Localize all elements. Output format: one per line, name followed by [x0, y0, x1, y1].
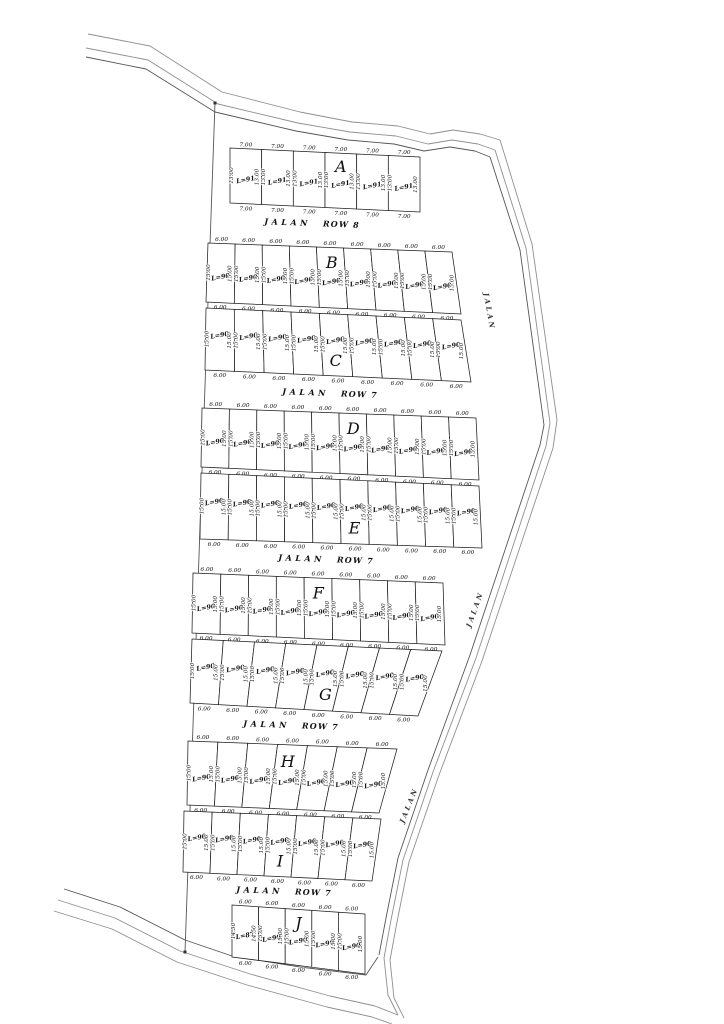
- lot-depth-dim: 15.00: [338, 933, 344, 950]
- lot-width-dim: 6.00: [228, 568, 241, 574]
- lot-depth-dim: 15.00: [422, 273, 428, 290]
- lot-depth-dim: 15.00: [381, 772, 387, 789]
- lot-width-dim: 6.00: [255, 710, 268, 716]
- lot-depth-dim: 15.00: [190, 662, 196, 679]
- lot-depth-dim: 15.00: [443, 439, 449, 456]
- lot-depth-dim: 15.00: [349, 337, 355, 354]
- lot-depth-dim: 15.00: [393, 673, 399, 690]
- lot-width-dim: 6.00: [351, 242, 364, 248]
- lot-depth-dim: 15.00: [430, 341, 436, 358]
- street-label-side: JALAN: [481, 290, 497, 331]
- lot-width-dim: 6.00: [296, 240, 309, 246]
- lot-depth-dim: 15.00: [234, 265, 240, 282]
- lot-width-dim: 6.00: [423, 576, 436, 582]
- lot-width-dim: 6.00: [361, 380, 374, 386]
- lot-depth-dim: 15.00: [276, 598, 282, 615]
- block-F: 6.006.00L=906.006.00L=906.006.00L=906.00…: [192, 567, 445, 653]
- plat-drawing: 7.007.00L=917.007.00L=917.007.00L=917.00…: [0, 0, 724, 1024]
- block-I: 6.00L=906.00L=906.00L=906.00L=90I6.00L=9…: [183, 811, 381, 889]
- lot-depth-dim: 15.00: [343, 337, 349, 354]
- lot-width-dim: 6.00: [376, 742, 389, 748]
- lot-depth-dim: 15.00: [183, 833, 189, 850]
- lot-depth-dim: 15.00: [305, 502, 311, 519]
- lot-depth-dim: 15.00: [238, 835, 244, 852]
- lot-depth-dim: 15.00: [187, 764, 193, 781]
- lot-width-dim: 6.00: [208, 542, 221, 548]
- lot-depth-dim: 15.00: [331, 601, 337, 618]
- lot-depth-dim: 15.00: [388, 437, 394, 454]
- north-road-outer: [88, 34, 500, 140]
- lot-depth-dim: 15.00: [321, 839, 327, 856]
- lot-depth-dim: 15.00: [422, 438, 428, 455]
- lot-width-dim: 7.00: [334, 147, 347, 153]
- lot-depth-dim: 15.00: [266, 768, 272, 785]
- lot-width-dim: 6.00: [352, 883, 365, 889]
- lot-depth-dim: 15.00: [201, 429, 207, 446]
- lot-width-dim: 6.00: [378, 243, 391, 249]
- lot-depth-dim: 15.00: [249, 500, 255, 517]
- lot-depth-dim: 13.00: [254, 168, 260, 185]
- lot-depth-dim: 15.00: [381, 603, 387, 620]
- lot-depth-dim: 15.00: [339, 435, 345, 452]
- lot-depth-dim: 15.00: [449, 439, 455, 456]
- lot-depth-dim: 15.00: [280, 667, 286, 684]
- lot-width-dim: 6.00: [271, 879, 284, 885]
- north-road-mid: [86, 48, 495, 150]
- lot-width-dim: 7.00: [398, 150, 411, 156]
- lot-depth-dim: 15.00: [311, 269, 317, 286]
- lot-depth-dim: 15.00: [372, 338, 378, 355]
- lot-width-dim: 6.00: [226, 736, 239, 742]
- lot-depth-dim: 15.00: [320, 336, 326, 353]
- lot-width-dim: 6.00: [291, 405, 304, 411]
- lot-depth-dim: 15.00: [332, 435, 338, 452]
- lot-width-dim: 6.00: [243, 375, 256, 381]
- lot-depth-dim: 15.00: [220, 664, 226, 681]
- lot-width-dim: 6.00: [405, 548, 418, 554]
- street-label: JALANROW 7: [234, 884, 332, 898]
- lot-depth-dim: 15.00: [262, 266, 268, 283]
- lot-depth-dim: 13.00: [388, 174, 394, 191]
- lot-width-dim: 7.00: [271, 144, 284, 150]
- lot-depth-dim: 15.00: [387, 603, 393, 620]
- lot-depth-dim: 15.00: [244, 767, 250, 784]
- lot-depth-dim: 15.00: [209, 766, 215, 783]
- lot-depth-dim: 15.00: [330, 770, 336, 787]
- lot-depth-dim: 15.00: [210, 834, 216, 851]
- lot-depth-dim: 15.00: [250, 431, 256, 448]
- lot-width-dim: 6.00: [217, 876, 230, 882]
- lot-width-dim: 6.00: [345, 907, 358, 913]
- lot-width-dim: 6.00: [312, 572, 325, 578]
- lot-depth-dim: 15.00: [415, 604, 421, 621]
- lot-depth-dim: 15.00: [437, 605, 443, 622]
- lot-width-dim: 6.00: [213, 373, 226, 379]
- lot-depth-dim: 15.00: [369, 672, 375, 689]
- lot-depth-dim: 15.00: [358, 935, 364, 952]
- lot-depth-dim: 15.00: [340, 503, 346, 520]
- lot-width-dim: 6.00: [349, 546, 362, 552]
- block-letter: I: [276, 852, 284, 871]
- lot-depth-dim: 14.50: [251, 925, 257, 942]
- block-letter: B: [325, 253, 338, 272]
- lot-depth-dim: 15.00: [284, 432, 290, 449]
- lot-width-dim: 6.00: [367, 574, 380, 580]
- lot-width-dim: 6.00: [292, 968, 305, 974]
- lot-depth-dim: 15.00: [248, 597, 254, 614]
- block-C: 6.00L=906.00L=906.00L=906.00L=906.00L=90…: [205, 308, 471, 390]
- north-road-inner: [86, 57, 490, 157]
- lot-width-dim: 6.00: [215, 237, 228, 243]
- lot-width-dim: 6.00: [324, 241, 337, 247]
- lot-depth-dim: 15.00: [333, 503, 339, 520]
- lot-depth-dim: 15.00: [284, 501, 290, 518]
- lot-width-dim: 6.00: [340, 714, 353, 720]
- lot-width-dim: 6.00: [244, 878, 257, 884]
- lot-depth-dim: 15.00: [284, 928, 290, 945]
- block-letter: A: [333, 157, 347, 176]
- lot-depth-dim: 15.00: [227, 332, 233, 349]
- block-J: 6.006.00L=876.006.00L=906.006.00L=90J6.0…: [231, 899, 365, 980]
- lot-width-dim: 6.00: [269, 239, 282, 245]
- lot-depth-dim: 15.00: [399, 673, 405, 690]
- lot-depth-dim: 15.00: [285, 334, 291, 351]
- lot-depth-dim: 15.00: [231, 835, 237, 852]
- lot-depth-dim: 15.00: [331, 933, 337, 950]
- lot-width-dim: 7.00: [239, 206, 252, 212]
- lot-depth-dim: 15.00: [389, 505, 395, 522]
- lot-width-dim: 6.00: [226, 708, 239, 714]
- lot-depth-dim: 13.00: [293, 170, 299, 187]
- lot-depth-dim: 13.00: [413, 176, 419, 193]
- lot-width-dim: 6.00: [292, 903, 305, 909]
- lot-width-dim: 6.00: [319, 406, 332, 412]
- lot-depth-dim: 15.00: [278, 928, 284, 945]
- lot-depth-dim: 15.00: [340, 670, 346, 687]
- lot-depth-dim: 15.00: [449, 274, 455, 291]
- lot-depth-dim: 15.00: [366, 271, 372, 288]
- lot-depth-dim: 15.00: [234, 332, 240, 349]
- lot-depth-dim: 15.00: [369, 841, 375, 858]
- lot-depth-dim: 15.00: [324, 770, 330, 787]
- lot-width-dim: 6.00: [265, 965, 278, 971]
- lot-width-dim: 6.00: [450, 384, 463, 390]
- lot-depth-dim: 15.00: [396, 505, 402, 522]
- street-label: JALANROW 7: [276, 552, 374, 566]
- lot-width-dim: 6.00: [237, 403, 250, 409]
- lot-depth-dim: 13.00: [356, 173, 362, 190]
- lot-width-dim: 6.00: [190, 875, 203, 881]
- lot-depth-dim: 15.00: [238, 767, 244, 784]
- lot-depth-dim: 15.00: [311, 433, 317, 450]
- lot-depth-dim: 15.00: [259, 837, 265, 854]
- lot-depth-dim: 15.00: [470, 440, 476, 457]
- block-letter: C: [330, 351, 342, 370]
- lot-width-dim: 6.00: [319, 971, 332, 977]
- block-G: 6.00L=906.00L=906.00L=906.00L=906.00L=90…: [190, 639, 442, 724]
- lot-width-dim: 6.00: [374, 408, 387, 414]
- lot-depth-dim: 15.00: [256, 333, 262, 350]
- lot-depth-dim: 15.00: [366, 436, 372, 453]
- lot-depth-dim: 15.00: [333, 670, 339, 687]
- lot-depth-dim: 13.00: [229, 167, 235, 184]
- lot-depth-dim: 15.00: [352, 771, 358, 788]
- lot-depth-dim: 15.00: [424, 506, 430, 523]
- lot-width-dim: 6.00: [298, 880, 311, 886]
- lot-depth-dim: 15.00: [200, 497, 206, 514]
- lot-depth-dim: 15.00: [445, 507, 451, 524]
- lot-depth-dim: 15.00: [360, 436, 366, 453]
- lot-depth-dim: 15.00: [311, 930, 317, 947]
- lot-width-dim: 6.00: [320, 546, 333, 552]
- lot-depth-dim: 15.00: [258, 925, 264, 942]
- street-label: JALANROW 7: [241, 718, 339, 732]
- lot-depth-dim: 15.00: [345, 270, 351, 287]
- block-B: 6.006.00L=906.006.00L=906.006.00L=906.00…: [206, 237, 461, 322]
- lot-width-dim: 7.00: [398, 214, 411, 220]
- lot-depth-dim: 13.00: [349, 173, 355, 190]
- lot-depth-dim: 15.00: [301, 769, 307, 786]
- lot-width-dim: 6.00: [332, 379, 345, 385]
- lot-width-dim: 6.00: [264, 544, 277, 550]
- lot-width-dim: 6.00: [302, 377, 315, 383]
- lot-depth-dim: 15.00: [452, 507, 458, 524]
- lot-depth-dim: 15.00: [317, 269, 323, 286]
- lot-depth-dim: 15.00: [277, 501, 283, 518]
- lot-width-dim: 6.00: [196, 735, 209, 741]
- lot-width-dim: 6.00: [461, 550, 474, 556]
- lot-width-dim: 6.00: [200, 567, 213, 573]
- lot-depth-dim: 15.00: [206, 264, 212, 281]
- lot-depth-dim: 15.00: [263, 333, 269, 350]
- lot-width-dim: 6.00: [283, 711, 296, 717]
- block-A: 7.007.00L=917.007.00L=917.007.00L=917.00…: [229, 142, 420, 220]
- site-plan-svg: 7.007.00L=917.007.00L=917.007.00L=917.00…: [0, 0, 724, 1024]
- lot-depth-dim: 15.00: [283, 267, 289, 284]
- lot-depth-dim: 15.00: [314, 336, 320, 353]
- lot-depth-dim: 15.00: [325, 601, 331, 618]
- lot-depth-dim: 13.00: [286, 170, 292, 187]
- lot-depth-dim: 15.00: [297, 599, 303, 616]
- lot-depth-dim: 15.00: [220, 596, 226, 613]
- lot-depth-dim: 15.00: [394, 437, 400, 454]
- lot-depth-dim: 15.00: [305, 433, 311, 450]
- lot-depth-dim: 15.00: [436, 341, 442, 358]
- lot-depth-dim: 15.00: [314, 839, 320, 856]
- lot-depth-dim: 15.00: [353, 602, 359, 619]
- lot-width-dim: 7.00: [303, 209, 316, 215]
- lot-depth-dim: 15.00: [277, 432, 283, 449]
- lot-depth-dim: 15.00: [228, 430, 234, 447]
- lot-width-dim: 6.00: [401, 409, 414, 415]
- lot-depth-dim: 15.00: [368, 504, 374, 521]
- lot-width-dim: 6.00: [346, 741, 359, 747]
- lot-width-dim: 7.00: [239, 142, 252, 148]
- lot-depth-dim: 15.00: [273, 667, 279, 684]
- lot-width-dim: 6.00: [198, 706, 211, 712]
- lot-width-dim: 6.00: [239, 961, 252, 967]
- street-label: JALANROW 7: [280, 386, 378, 400]
- lot-width-dim: 6.00: [345, 975, 358, 981]
- lot-depth-dim: 15.00: [373, 271, 379, 288]
- lot-depth-dim: 15.00: [415, 438, 421, 455]
- lot-width-dim: 6.00: [433, 549, 446, 555]
- lot-depth-dim: 14.50: [231, 922, 237, 939]
- lot-depth-dim: 15.00: [378, 338, 384, 355]
- block-letter: G: [319, 685, 332, 704]
- lot-depth-dim: 15.00: [204, 834, 210, 851]
- lot-depth-dim: 15.00: [459, 342, 465, 359]
- lot-depth-dim: 15.00: [255, 266, 261, 283]
- lot-width-dim: 6.00: [256, 569, 269, 575]
- lot-depth-dim: 15.00: [214, 664, 220, 681]
- lot-depth-dim: 15.00: [394, 272, 400, 289]
- block-letter: H: [280, 752, 296, 771]
- lot-width-dim: 6.00: [420, 383, 433, 389]
- lot-depth-dim: 15.00: [417, 506, 423, 523]
- boundary-marker: [214, 102, 217, 105]
- lot-width-dim: 6.00: [264, 404, 277, 410]
- lot-width-dim: 6.00: [256, 737, 269, 743]
- lot-width-dim: 6.00: [456, 411, 469, 417]
- lot-depth-dim: 15.00: [312, 502, 318, 519]
- lot-width-dim: 6.00: [369, 716, 382, 722]
- lot-depth-dim: 15.00: [409, 604, 415, 621]
- lot-depth-dim: 15.00: [192, 594, 198, 611]
- lot-depth-dim: 15.00: [205, 330, 211, 347]
- lot-width-dim: 6.00: [209, 402, 222, 408]
- lot-width-dim: 6.00: [377, 547, 390, 553]
- lot-depth-dim: 13.00: [324, 171, 330, 188]
- lot-depth-dim: 15.00: [222, 430, 228, 447]
- lot-depth-dim: 15.00: [273, 768, 279, 785]
- lot-depth-dim: 13.00: [318, 171, 324, 188]
- lot-depth-dim: 15.00: [265, 837, 271, 854]
- lot-depth-dim: 15.00: [295, 769, 301, 786]
- lot-depth-dim: 15.00: [423, 675, 429, 692]
- lot-width-dim: 6.00: [405, 244, 418, 250]
- lot-width-dim: 6.00: [284, 570, 297, 576]
- lot-depth-dim: 15.00: [305, 930, 311, 947]
- lot-width-dim: 6.00: [432, 245, 445, 251]
- lot-depth-dim: 15.00: [401, 340, 407, 357]
- lot-width-dim: 6.00: [312, 713, 325, 719]
- lot-width-dim: 6.00: [339, 573, 352, 579]
- lot-depth-dim: 15.00: [359, 602, 365, 619]
- lot-width-dim: 6.00: [397, 718, 410, 724]
- lot-width-dim: 6.00: [236, 543, 249, 549]
- street-label: JALANROW 8: [262, 216, 360, 230]
- lot-width-dim: 7.00: [334, 211, 347, 217]
- lot-width-dim: 6.00: [265, 901, 278, 907]
- lot-width-dim: 6.00: [319, 905, 332, 911]
- lot-depth-dim: 15.00: [228, 265, 234, 282]
- lot-width-dim: 7.00: [366, 148, 379, 154]
- lot-depth-dim: 15.00: [342, 840, 348, 857]
- lot-width-dim: 6.00: [428, 410, 441, 416]
- lot-depth-dim: 15.00: [303, 599, 309, 616]
- lot-width-dim: 7.00: [271, 208, 284, 214]
- lot-depth-dim: 15.00: [292, 334, 298, 351]
- lot-depth-dim: 15.00: [256, 431, 262, 448]
- lot-width-dim: 6.00: [272, 376, 285, 382]
- lot-depth-dim: 15.00: [269, 598, 275, 615]
- lot-width-dim: 7.00: [303, 145, 316, 151]
- lot-depth-dim: 15.00: [228, 498, 234, 515]
- lot-depth-dim: 15.00: [338, 270, 344, 287]
- lot-depth-dim: 15.00: [221, 498, 227, 515]
- lot-depth-dim: 13.00: [261, 168, 267, 185]
- lot-width-dim: 6.00: [391, 381, 404, 387]
- lot-depth-dim: 15.00: [310, 669, 316, 686]
- lot-depth-dim: 15.00: [287, 838, 293, 855]
- block-letter: E: [348, 519, 361, 538]
- lot-depth-dim: 15.00: [407, 340, 413, 357]
- lot-depth-dim: 15.00: [289, 267, 295, 284]
- lot-depth-dim: 15.00: [241, 597, 247, 614]
- lot-width-dim: 6.00: [286, 739, 299, 745]
- lot-width-dim: 6.00: [316, 740, 329, 746]
- lot-width-dim: 6.00: [395, 575, 408, 581]
- block-letter: D: [346, 419, 360, 438]
- lot-depth-dim: 15.00: [428, 273, 434, 290]
- lot-depth-dim: 15.00: [250, 666, 256, 683]
- lot-depth-dim: 15.00: [293, 838, 299, 855]
- lot-width-dim: 6.00: [292, 545, 305, 551]
- lot-depth-dim: 15.00: [359, 771, 365, 788]
- lot-depth-dim: 15.00: [361, 504, 367, 521]
- lot-depth-dim: 13.00: [381, 174, 387, 191]
- lot-depth-dim: 15.00: [213, 596, 219, 613]
- lot-width-dim: 7.00: [366, 212, 379, 218]
- lot-depth-dim: 15.00: [363, 672, 369, 689]
- lot-width-dim: 6.00: [239, 899, 252, 905]
- lot-depth-dim: 15.00: [244, 666, 250, 683]
- lot-depth-dim: 15.00: [400, 272, 406, 289]
- lot-depth-dim: 15.00: [256, 500, 262, 517]
- lot-depth-dim: 15.00: [348, 840, 354, 857]
- lot-width-dim: 6.00: [242, 238, 255, 244]
- lot-depth-dim: 15.00: [473, 508, 479, 525]
- block-E: 6.00L=906.00L=906.00L=906.00L=906.00L=90…: [200, 473, 482, 556]
- lot-depth-dim: 15.00: [215, 766, 221, 783]
- lot-depth-dim: 15.00: [303, 669, 309, 686]
- block-letter: F: [312, 584, 325, 603]
- block-H: 6.006.00L=906.006.00L=906.006.00L=906.00…: [187, 735, 397, 821]
- street-label-side: JALAN: [463, 590, 485, 631]
- lot-width-dim: 6.00: [346, 407, 359, 413]
- boundary-marker: [184, 951, 187, 954]
